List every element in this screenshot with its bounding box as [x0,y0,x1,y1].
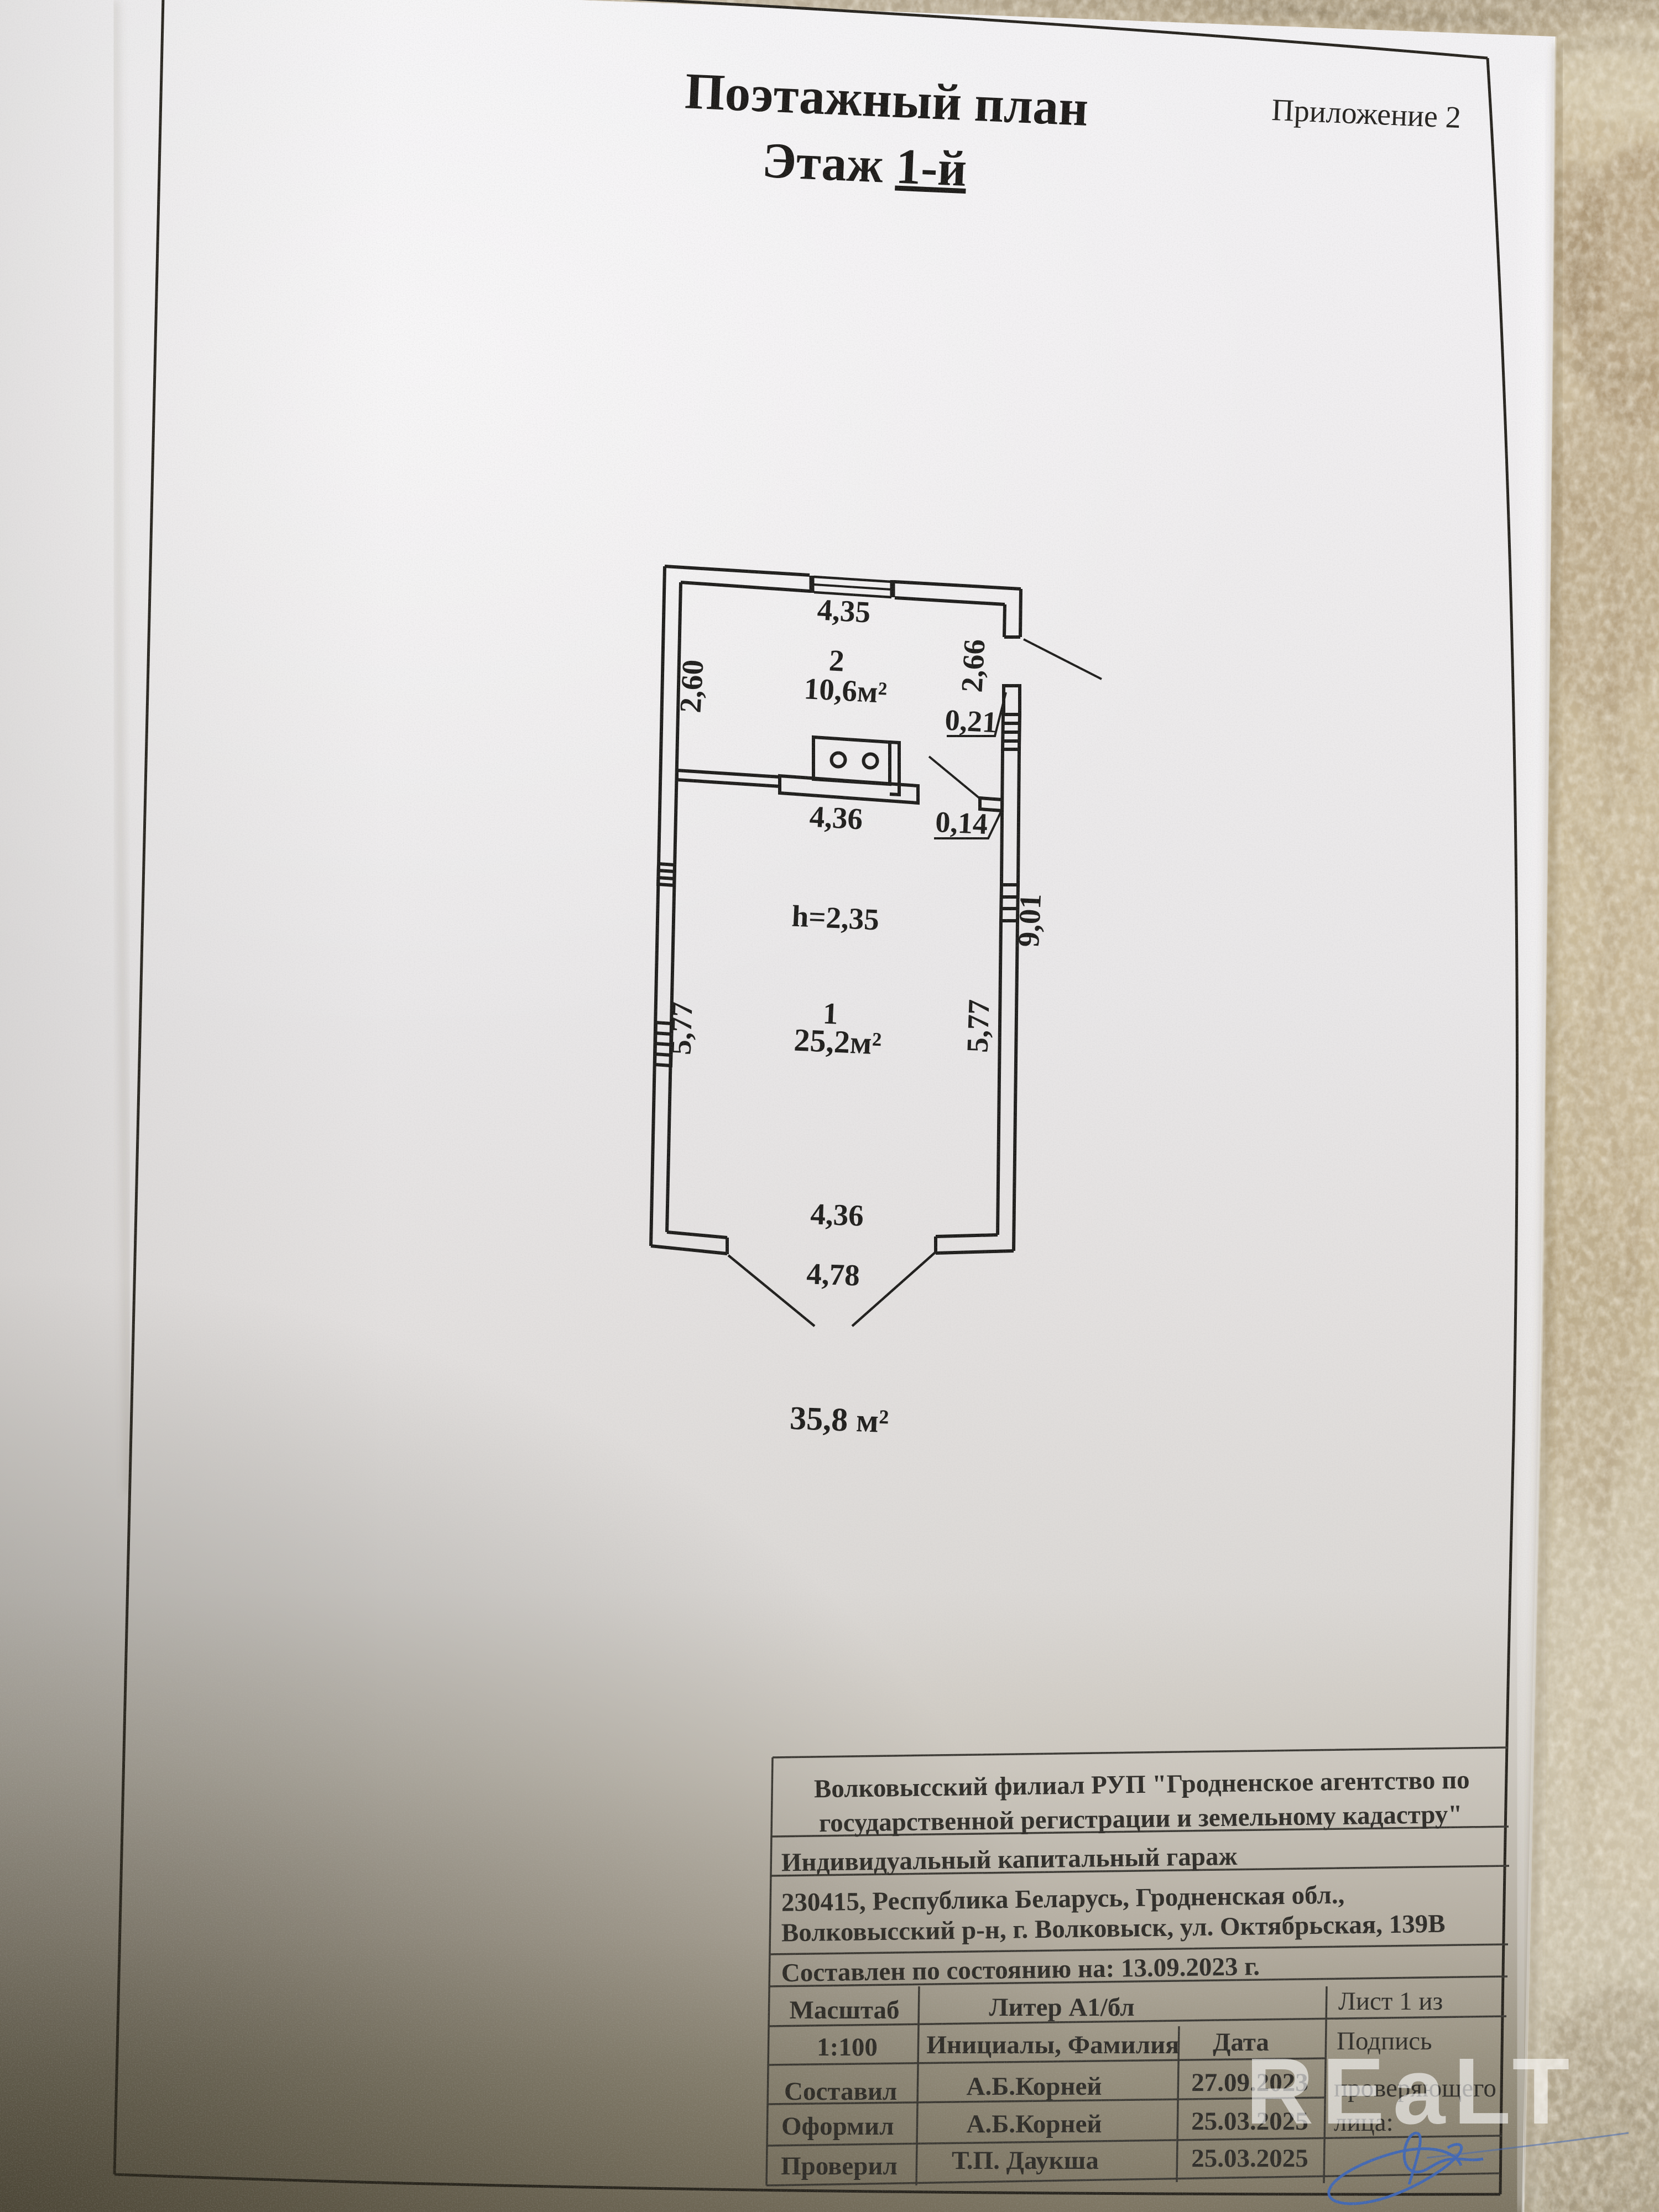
svg-text:REaLT: REaLT [1246,2039,1578,2144]
